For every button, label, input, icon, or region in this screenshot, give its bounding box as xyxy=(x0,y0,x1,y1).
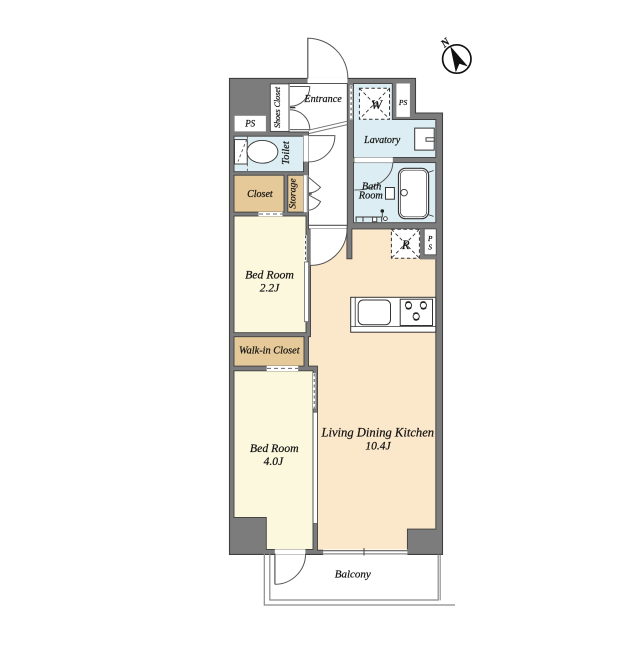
svg-text:R: R xyxy=(401,238,410,252)
svg-text:Lavatory: Lavatory xyxy=(363,135,401,146)
svg-text:Balcony: Balcony xyxy=(335,569,371,581)
svg-text:Toilet: Toilet xyxy=(281,140,292,165)
svg-text:P: P xyxy=(427,235,433,243)
svg-text:PS: PS xyxy=(244,119,255,129)
svg-text:S: S xyxy=(428,243,432,251)
svg-text:Room: Room xyxy=(358,191,383,202)
svg-text:Living Dining Kitchen: Living Dining Kitchen xyxy=(320,426,434,440)
svg-text:W: W xyxy=(371,97,383,112)
svg-text:PS: PS xyxy=(398,98,408,107)
svg-text:10.4J: 10.4J xyxy=(365,441,391,453)
svg-text:Shoes Closet: Shoes Closet xyxy=(273,86,282,128)
svg-text:Entrance: Entrance xyxy=(303,94,342,105)
svg-text:Bed Room: Bed Room xyxy=(250,441,299,455)
svg-text:Walk-in Closet: Walk-in Closet xyxy=(239,345,301,356)
svg-text:Closet: Closet xyxy=(247,189,273,200)
svg-text:Storage: Storage xyxy=(288,178,299,209)
svg-text:2.2J: 2.2J xyxy=(260,283,280,295)
svg-text:Bed Room: Bed Room xyxy=(245,268,294,282)
svg-text:4.0J: 4.0J xyxy=(264,456,284,468)
